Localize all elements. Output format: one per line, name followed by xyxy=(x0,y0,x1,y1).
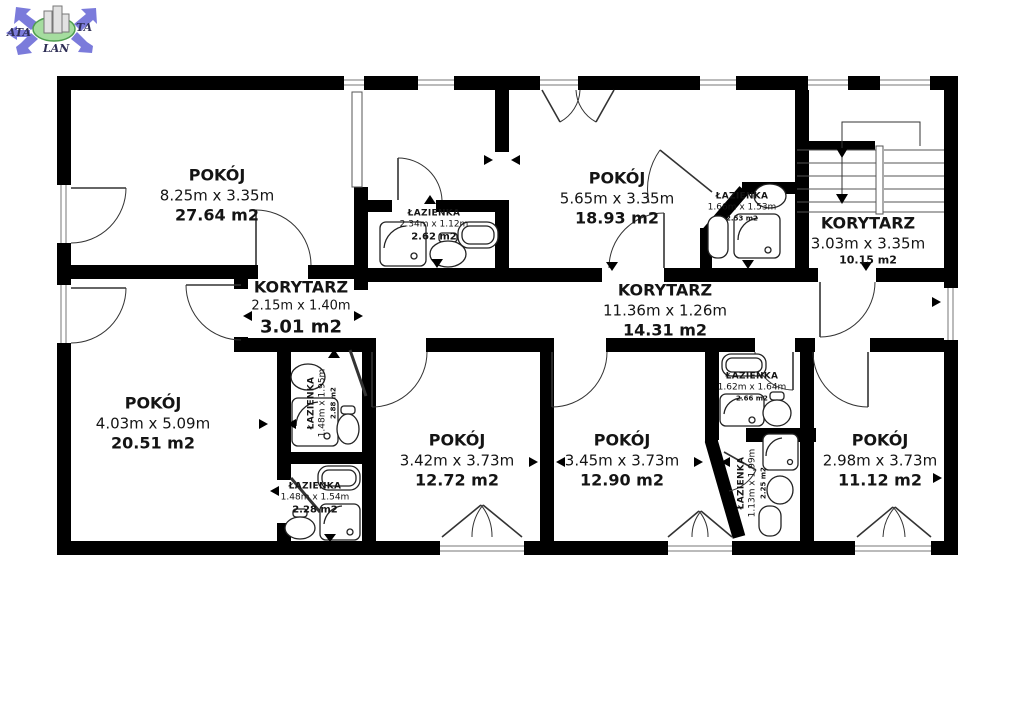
logo-buildings-icon xyxy=(44,6,69,33)
room-area: 12.72 m2 xyxy=(400,471,514,492)
room-dimensions: 1.48m x 1.54m xyxy=(281,493,350,504)
window-bottom-2 xyxy=(668,541,732,555)
room-name: ŁAZIENKA xyxy=(306,369,317,438)
glazed-partition xyxy=(352,92,362,187)
room-area: 2.28 m2 xyxy=(281,504,350,517)
double-door-room1112-bottom xyxy=(857,507,931,537)
room-dimensions: 2.15m x 1.40m xyxy=(251,298,350,315)
room-label-korytarz-301: KORYTARZ 2.15m x 1.40m 3.01 m2 xyxy=(251,277,350,338)
room-label-lazienka-228: ŁAZIENKA 1.48m x 1.54m 2.28 m2 xyxy=(281,482,350,517)
double-door-room1290-bottom xyxy=(668,511,732,537)
window-top-2 xyxy=(418,76,454,90)
window-top-4 xyxy=(808,76,848,90)
room-dimensions: 2.34m x 1.12m xyxy=(400,220,469,231)
room-label-lazienka-288: ŁAZIENKA 1.48m x 1.95m 2.88 m2 xyxy=(306,369,337,438)
door-korytarz1015 xyxy=(820,282,875,337)
room-dimensions: 3.42m x 3.73m xyxy=(400,451,514,471)
room-name: ŁAZIENKA xyxy=(281,482,350,493)
room-name: ŁAZIENKA xyxy=(718,371,787,382)
double-door-room1272-bottom xyxy=(442,505,522,537)
window-bottom-1 xyxy=(440,541,524,555)
balcony-door-top xyxy=(540,76,578,90)
window-left-1 xyxy=(57,185,71,243)
room-name: POKÓJ xyxy=(96,393,210,414)
room-name: KORYTARZ xyxy=(251,277,350,298)
room-name: POKÓJ xyxy=(565,430,679,451)
room-area: 2.53 m2 xyxy=(708,214,777,223)
room-label-pokoj-2764: POKÓJ 8.25m x 3.35m 27.64 m2 xyxy=(160,165,274,226)
room-name: ŁAZIENKA xyxy=(736,449,747,518)
room-name: POKÓJ xyxy=(560,168,674,189)
stair-arrow-icon xyxy=(836,148,848,158)
staircase xyxy=(797,122,944,214)
window-top-5 xyxy=(880,76,930,90)
room-name: POKÓJ xyxy=(400,430,514,451)
room-name: KORYTARZ xyxy=(811,214,925,235)
toilet-icon xyxy=(767,476,793,504)
room-dimensions: 8.25m x 3.35m xyxy=(160,186,274,206)
toilet-icon xyxy=(337,406,359,444)
room-label-pokoj-1893: POKÓJ 5.65m x 3.35m 18.93 m2 xyxy=(560,168,674,229)
window-bottom-3 xyxy=(855,541,931,555)
room-dimensions: 1.13m x 1.99m xyxy=(748,449,759,518)
room-area: 20.51 m2 xyxy=(96,434,210,455)
room-area: 2.66 m2 xyxy=(718,394,787,403)
room-name: KORYTARZ xyxy=(603,280,727,301)
room-label-pokoj-2051: POKÓJ 4.03m x 5.09m 20.51 m2 xyxy=(96,393,210,454)
room-dimensions: 1.48m x 1.95m xyxy=(318,369,329,438)
floor-plan-drawing xyxy=(0,0,1024,724)
room-dimensions: 1.66m x 1.53m xyxy=(708,203,777,214)
room-dimensions: 2.98m x 3.73m xyxy=(823,451,937,471)
logo-text-left: ATA xyxy=(6,26,32,39)
room-label-korytarz-1431: KORYTARZ 11.36m x 1.26m 14.31 m2 xyxy=(603,280,727,341)
room-name: POKÓJ xyxy=(160,165,274,186)
room-label-lazienka-253: ŁAZIENKA 1.66m x 1.53m 2.53 m2 xyxy=(708,191,777,222)
door-room1290 xyxy=(552,352,607,407)
room-area: 3.01 m2 xyxy=(251,315,350,338)
window-top-1 xyxy=(344,76,364,90)
room-area: 27.64 m2 xyxy=(160,206,274,227)
logo-text-bottom: LAN xyxy=(42,42,70,55)
room-label-lazienka-266: ŁAZIENKA 1.62m x 1.64m 2.66 m2 xyxy=(718,371,787,402)
logo-text-right: TA xyxy=(76,21,93,34)
room-label-lazienka-262: ŁAZIENKA 2.34m x 1.12m 2.62 m2 xyxy=(400,209,469,244)
room-area: 14.31 m2 xyxy=(603,321,727,342)
door-balcony-room2051 xyxy=(71,288,126,343)
door-room1272 xyxy=(372,352,427,407)
window-right-1 xyxy=(944,288,958,340)
door-room2051-korytarz301 xyxy=(186,285,241,340)
room-area: 2.88 m2 xyxy=(329,369,338,438)
room-label-pokoj-1272: POKÓJ 3.42m x 3.73m 12.72 m2 xyxy=(400,430,514,491)
door-room1112 xyxy=(813,352,868,407)
room-dimensions: 11.36m x 1.26m xyxy=(603,301,727,321)
room-name: ŁAZIENKA xyxy=(400,209,469,220)
room-area: 10.15 m2 xyxy=(811,254,925,268)
room-area: 11.12 m2 xyxy=(823,471,937,492)
agency-logo: ATA TA LAN xyxy=(4,2,114,62)
room-label-pokoj-1112: POKÓJ 2.98m x 3.73m 11.12 m2 xyxy=(823,430,937,491)
room-dimensions: 5.65m x 3.35m xyxy=(560,189,674,209)
room-label-korytarz-1015: KORYTARZ 3.03m x 3.35m 10.15 m2 xyxy=(811,214,925,269)
stair-rail xyxy=(876,146,883,214)
room-label-pokoj-1290: POKÓJ 3.45m x 3.73m 12.90 m2 xyxy=(565,430,679,491)
floor-plan-page: ATA TA LAN POKÓJ 8.25m x 3.35m 27.64 m2 … xyxy=(0,0,1024,724)
room-label-lazienka-225: ŁAZIENKA 1.13m x 1.99m 2.25 m2 xyxy=(736,449,767,518)
room-name: ŁAZIENKA xyxy=(708,191,777,202)
window-left-2 xyxy=(57,285,71,343)
room-dimensions: 1.62m x 1.64m xyxy=(718,383,787,394)
double-door-room1893-top xyxy=(542,90,614,122)
room-area: 18.93 m2 xyxy=(560,209,674,230)
room-name: POKÓJ xyxy=(823,430,937,451)
door-room2764-bath262 xyxy=(398,158,442,200)
room-dimensions: 3.45m x 3.73m xyxy=(565,451,679,471)
window-top-3 xyxy=(700,76,736,90)
shower-icon xyxy=(763,434,798,470)
room-dimensions: 3.03m x 3.35m xyxy=(811,235,925,255)
door-balcony-room2764-a xyxy=(71,188,126,243)
room-area: 2.25 m2 xyxy=(759,449,768,518)
room-area: 2.62 m2 xyxy=(400,231,469,244)
room-area: 12.90 m2 xyxy=(565,471,679,492)
room-dimensions: 4.03m x 5.09m xyxy=(96,414,210,434)
